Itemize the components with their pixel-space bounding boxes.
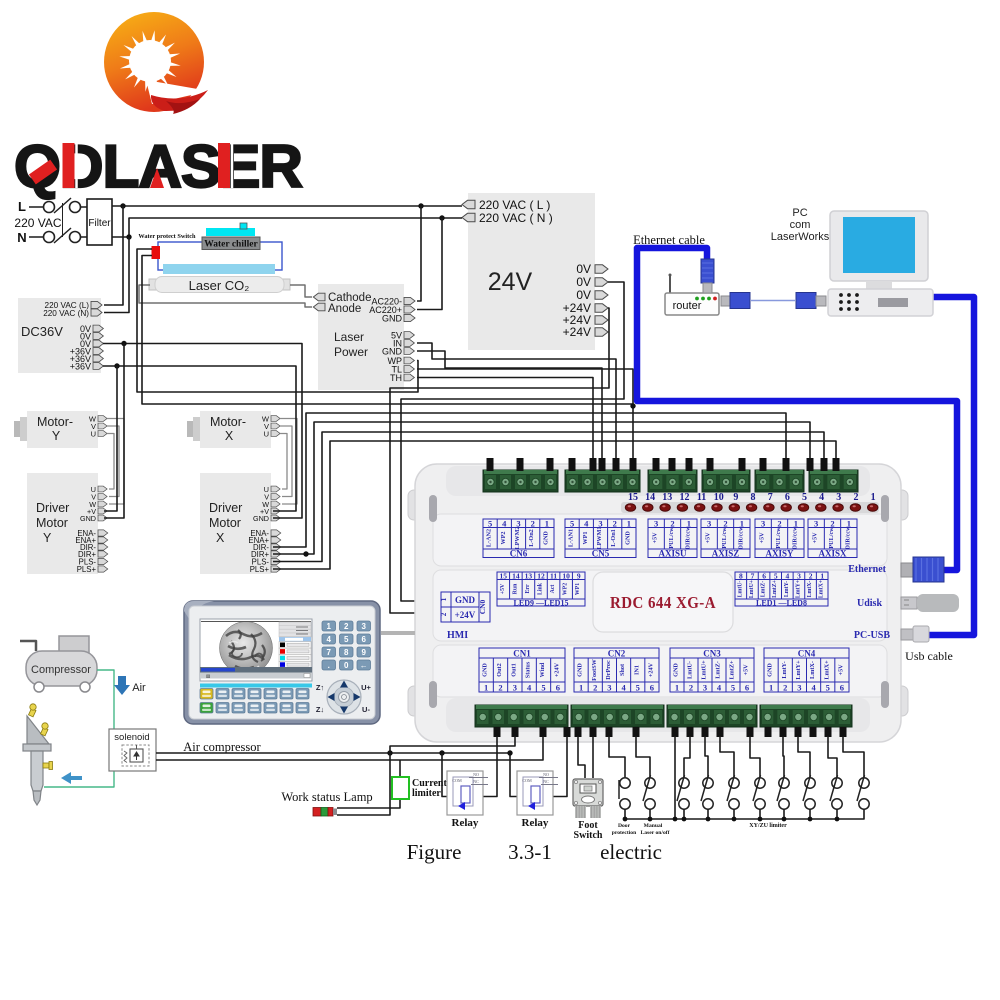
svg-text:L-AN2: L-AN2: [486, 529, 493, 547]
svg-text:GND: GND: [253, 514, 269, 523]
svg-text:5: 5: [826, 683, 830, 693]
svg-text:PUL/cw: PUL/cw: [721, 527, 728, 549]
svg-text:GND: GND: [624, 531, 631, 545]
svg-text:GND: GND: [577, 663, 584, 677]
svg-text:PUL/cw: PUL/cw: [828, 527, 835, 549]
svg-text:5: 5: [541, 683, 545, 693]
svg-text:IN1: IN1: [633, 665, 640, 675]
svg-text:2: 2: [853, 492, 858, 503]
svg-text:CN0: CN0: [478, 599, 487, 614]
svg-text:GND: GND: [382, 314, 403, 324]
svg-text:Laser on/off: Laser on/off: [641, 830, 670, 836]
svg-text:Motor-: Motor-: [37, 415, 73, 429]
svg-text:PLS+: PLS+: [77, 565, 97, 574]
svg-text:limiter: limiter: [412, 788, 441, 799]
svg-text:AXISY: AXISY: [765, 549, 794, 559]
svg-text:Filter: Filter: [88, 218, 111, 229]
svg-text:Motor: Motor: [209, 516, 241, 530]
svg-text:N: N: [17, 230, 26, 245]
svg-text:Power: Power: [334, 345, 368, 359]
svg-text:8: 8: [344, 648, 349, 657]
svg-text:LmtX+: LmtX+: [819, 580, 825, 598]
svg-text:2: 2: [613, 519, 617, 529]
svg-text:AXISU: AXISU: [658, 549, 687, 559]
svg-text:←: ←: [360, 661, 368, 670]
svg-text:2: 2: [809, 572, 813, 581]
svg-text:+24V: +24V: [563, 325, 591, 339]
svg-text:+5V: +5V: [500, 583, 506, 594]
svg-text:Relay: Relay: [452, 817, 479, 829]
svg-text:AXISX: AXISX: [818, 549, 847, 559]
svg-text:9: 9: [361, 648, 366, 657]
svg-text:Link: Link: [538, 582, 544, 595]
svg-text:CN6: CN6: [510, 549, 528, 559]
svg-text:12: 12: [537, 572, 545, 581]
svg-text:GND: GND: [80, 514, 96, 523]
svg-text:3: 3: [761, 519, 765, 529]
svg-text:.: .: [328, 661, 330, 670]
svg-text:3: 3: [607, 683, 611, 693]
svg-text:LPWM1: LPWM1: [596, 526, 603, 549]
svg-text:PUL/cw: PUL/cw: [668, 527, 675, 549]
svg-text:Air compressor: Air compressor: [183, 740, 261, 754]
svg-text:Y: Y: [43, 531, 52, 545]
svg-text:+5V: +5V: [837, 664, 844, 676]
svg-text:13: 13: [662, 492, 672, 503]
svg-text:2: 2: [593, 683, 597, 693]
svg-text:DC36V: DC36V: [21, 324, 63, 339]
svg-text:6: 6: [650, 683, 654, 693]
svg-text:2: 2: [783, 683, 787, 693]
svg-text:1: 1: [769, 683, 773, 693]
svg-text:GND: GND: [382, 347, 403, 357]
svg-text:LED1 —LED8: LED1 —LED8: [756, 599, 807, 608]
svg-text:electric: electric: [600, 840, 662, 864]
svg-text:Z↑: Z↑: [316, 683, 324, 692]
svg-text:DIR/ccw: DIR/ccw: [791, 526, 798, 550]
svg-text:LmtZ-: LmtZ-: [761, 581, 767, 597]
svg-text:5: 5: [488, 519, 492, 529]
svg-text:3: 3: [797, 572, 801, 581]
svg-text:protection: protection: [612, 830, 637, 836]
svg-text:LmtY+: LmtY+: [795, 580, 801, 598]
svg-text:5: 5: [344, 635, 349, 644]
svg-text:8: 8: [739, 572, 743, 581]
svg-text:Switch: Switch: [574, 830, 603, 841]
svg-text:Door: Door: [618, 823, 631, 829]
svg-text:2: 2: [670, 519, 674, 529]
svg-text:1: 1: [440, 597, 448, 601]
svg-text:3: 3: [814, 519, 818, 529]
svg-text:14: 14: [512, 572, 520, 581]
svg-text:TH: TH: [390, 373, 402, 383]
svg-text:0V: 0V: [576, 275, 591, 289]
svg-text:10: 10: [714, 492, 724, 503]
svg-text:1: 1: [675, 683, 679, 693]
svg-text:Motor: Motor: [36, 516, 68, 530]
svg-text:220 VAC ( N ): 220 VAC ( N ): [479, 211, 553, 225]
svg-text:LmtZ+: LmtZ+: [772, 580, 778, 598]
svg-text:Run: Run: [512, 583, 518, 594]
svg-text:4: 4: [785, 572, 789, 581]
svg-text:2: 2: [440, 612, 448, 616]
svg-text:6: 6: [840, 683, 844, 693]
svg-text:2: 2: [723, 519, 727, 529]
svg-text:Status: Status: [525, 661, 532, 678]
svg-text:9: 9: [733, 492, 738, 503]
svg-text:LmtZ-: LmtZ-: [715, 661, 722, 679]
svg-text:4: 4: [811, 683, 816, 693]
svg-text:5: 5: [636, 683, 640, 693]
svg-text:X: X: [216, 531, 225, 545]
svg-text:X: X: [225, 429, 234, 443]
svg-text:24V: 24V: [488, 268, 533, 296]
svg-text:NC: NC: [543, 779, 549, 784]
svg-text:+5V: +5V: [743, 664, 750, 676]
svg-text:3: 3: [707, 519, 711, 529]
svg-text:PC: PC: [792, 207, 807, 219]
svg-text:8: 8: [751, 492, 756, 503]
svg-text:10: 10: [562, 572, 570, 581]
svg-text:5: 5: [774, 572, 778, 581]
svg-text:U-: U-: [362, 705, 370, 714]
svg-text:NO: NO: [543, 772, 549, 777]
svg-text:1: 1: [627, 519, 631, 529]
svg-text:Wind: Wind: [539, 662, 546, 677]
svg-text:1: 1: [326, 622, 331, 631]
svg-text:Shot: Shot: [619, 663, 626, 676]
svg-text:220 VAC: 220 VAC: [14, 216, 61, 230]
svg-text:Water chiller: Water chiller: [204, 240, 258, 250]
svg-text:+5V: +5V: [759, 532, 766, 544]
svg-text:RDC 644 XG-A: RDC 644 XG-A: [610, 593, 716, 612]
svg-text:7: 7: [768, 492, 773, 503]
svg-text:Air: Air: [132, 682, 146, 694]
svg-text:L-On2: L-On2: [528, 529, 535, 547]
svg-text:WP1: WP1: [575, 583, 581, 595]
svg-text:WP2: WP2: [500, 531, 507, 544]
svg-text:+5V: +5V: [652, 532, 659, 544]
svg-text:6: 6: [556, 683, 560, 693]
svg-text:Work status Lamp: Work status Lamp: [281, 790, 372, 804]
svg-text:4: 4: [502, 519, 507, 529]
svg-text:LmtY-: LmtY-: [784, 581, 790, 597]
svg-text:Figure: Figure: [407, 840, 462, 864]
svg-text:1: 1: [484, 683, 488, 693]
svg-text:Act: Act: [550, 585, 556, 594]
svg-text:PC-USB: PC-USB: [854, 630, 890, 641]
svg-text:Compressor: Compressor: [31, 664, 91, 676]
svg-text:2: 2: [777, 519, 781, 529]
svg-text:DIR/ccw: DIR/ccw: [684, 526, 691, 550]
svg-text:4: 4: [621, 683, 626, 693]
svg-text:CN5: CN5: [592, 549, 610, 559]
svg-text:Usb cable: Usb cable: [905, 649, 953, 663]
svg-text:LPWM2: LPWM2: [514, 526, 521, 549]
svg-text:WP1: WP1: [582, 531, 589, 544]
svg-text:CN1: CN1: [513, 649, 531, 659]
svg-text:Anode: Anode: [328, 303, 361, 315]
svg-text:7: 7: [326, 648, 331, 657]
svg-text:11: 11: [697, 492, 706, 503]
svg-text:router: router: [673, 300, 702, 312]
svg-text:Driver: Driver: [209, 501, 242, 515]
svg-text:PUL/cw: PUL/cw: [775, 527, 782, 549]
svg-text:FootSW: FootSW: [591, 658, 598, 680]
svg-text:DIR/ccw: DIR/ccw: [737, 526, 744, 550]
svg-text:PLS+: PLS+: [250, 565, 270, 574]
svg-text:DrProc: DrProc: [605, 660, 612, 680]
svg-text:LmtX-: LmtX-: [807, 581, 813, 598]
svg-text:220 VAC ( L ): 220 VAC ( L ): [479, 198, 550, 212]
svg-text:Y: Y: [52, 429, 61, 443]
svg-text:14: 14: [645, 492, 655, 503]
svg-text:1: 1: [871, 492, 876, 503]
svg-text:1: 1: [545, 519, 549, 529]
svg-text:13: 13: [525, 572, 533, 581]
svg-text:0V: 0V: [576, 288, 591, 302]
svg-text:L-AN1: L-AN1: [568, 529, 575, 547]
svg-text:NO: NO: [473, 772, 479, 777]
svg-text:COM: COM: [522, 778, 532, 783]
svg-text:LmtU-: LmtU-: [737, 581, 743, 598]
svg-text:com: com: [790, 219, 811, 231]
svg-text:0V: 0V: [576, 262, 591, 276]
svg-text:Out2: Out2: [496, 663, 503, 676]
svg-text:220 VAC (N): 220 VAC (N): [43, 309, 89, 318]
svg-text:solenoid: solenoid: [114, 732, 149, 743]
svg-text:9: 9: [577, 572, 581, 581]
svg-text:1: 1: [579, 683, 583, 693]
svg-text:2: 2: [531, 519, 535, 529]
svg-text:+24V: +24V: [553, 662, 560, 677]
svg-text:4: 4: [584, 519, 589, 529]
svg-text:5: 5: [570, 519, 574, 529]
svg-text:LmtU-: LmtU-: [687, 661, 694, 679]
svg-text:LmtZ+: LmtZ+: [729, 660, 736, 679]
svg-text:HMI: HMI: [447, 630, 468, 641]
svg-text:Out1: Out1: [510, 663, 517, 676]
svg-text:3.3-1: 3.3-1: [508, 840, 552, 864]
svg-text:6: 6: [762, 572, 766, 581]
svg-text:6: 6: [785, 492, 790, 503]
svg-text:11: 11: [550, 572, 557, 581]
svg-text:LmtU+: LmtU+: [749, 580, 755, 598]
svg-text:12: 12: [679, 492, 689, 503]
svg-text:5: 5: [802, 492, 807, 503]
svg-text:LmtX+: LmtX+: [823, 660, 830, 680]
svg-text:Z↓: Z↓: [316, 705, 324, 714]
svg-text:3: 3: [797, 683, 801, 693]
svg-text:+24V: +24V: [647, 662, 654, 677]
svg-text:3: 3: [513, 683, 517, 693]
svg-text:+5V: +5V: [705, 532, 712, 544]
svg-text:CN2: CN2: [608, 649, 626, 659]
svg-text:Manual: Manual: [644, 823, 663, 829]
svg-text:0: 0: [344, 661, 349, 670]
svg-text:Motor-: Motor-: [210, 415, 246, 429]
svg-text:4: 4: [819, 492, 824, 503]
svg-text:GND: GND: [455, 595, 476, 605]
svg-text:3: 3: [361, 622, 366, 631]
svg-text:6: 6: [745, 683, 749, 693]
svg-text:LaserWorks: LaserWorks: [771, 231, 830, 243]
svg-text:Laser CO₂: Laser CO₂: [189, 278, 250, 293]
svg-text:Driver: Driver: [36, 501, 69, 515]
svg-text:GND: GND: [542, 531, 549, 545]
svg-text:▤: ▤: [206, 674, 211, 679]
svg-text:4: 4: [527, 683, 532, 693]
svg-text:Water protect Switch: Water protect Switch: [138, 233, 196, 240]
svg-text:U: U: [264, 429, 269, 438]
svg-text:XY/ZU limiter: XY/ZU limiter: [749, 823, 787, 829]
svg-text:AXISZ: AXISZ: [712, 549, 740, 559]
svg-text:2: 2: [344, 622, 349, 631]
svg-text:15: 15: [628, 492, 638, 503]
svg-text:COM: COM: [452, 778, 462, 783]
svg-text:Ethernet: Ethernet: [848, 564, 886, 575]
svg-text:Relay: Relay: [522, 817, 549, 829]
svg-text:15: 15: [500, 572, 508, 581]
svg-text:LmtU+: LmtU+: [701, 660, 708, 680]
svg-text:U+: U+: [361, 683, 371, 692]
svg-text:NC: NC: [473, 779, 479, 784]
svg-text:L: L: [18, 199, 26, 214]
svg-text:2: 2: [830, 519, 834, 529]
svg-text:QDLASER: QDLASER: [14, 133, 303, 200]
svg-text:WP2: WP2: [563, 583, 569, 595]
svg-text:GND: GND: [767, 663, 774, 677]
svg-text:LmtY+: LmtY+: [795, 660, 802, 680]
svg-text:GND: GND: [673, 663, 680, 677]
svg-text:3: 3: [703, 683, 707, 693]
svg-text:Laser: Laser: [334, 330, 364, 344]
svg-text:L-On1: L-On1: [610, 529, 617, 547]
svg-text:LmtY-: LmtY-: [781, 661, 788, 678]
svg-text:+5V: +5V: [812, 532, 819, 544]
svg-text:3: 3: [654, 519, 658, 529]
svg-text:U: U: [91, 429, 96, 438]
svg-text:4: 4: [326, 635, 331, 644]
svg-text:1: 1: [820, 572, 824, 581]
svg-text:7: 7: [751, 572, 755, 581]
svg-text:+36V: +36V: [70, 362, 91, 372]
svg-text:GND: GND: [482, 663, 489, 677]
svg-text:Udisk: Udisk: [857, 598, 882, 609]
svg-text:Err: Err: [525, 584, 531, 593]
svg-text:+24V: +24V: [455, 610, 476, 620]
svg-text:6: 6: [361, 635, 366, 644]
svg-text:DIR/ccw: DIR/ccw: [844, 526, 851, 550]
svg-text:2: 2: [498, 683, 502, 693]
svg-text:3: 3: [836, 492, 841, 503]
svg-text:5: 5: [731, 683, 735, 693]
svg-text:LED9 —LED15: LED9 —LED15: [514, 599, 569, 608]
svg-text:CN3: CN3: [703, 649, 721, 659]
svg-text:CN4: CN4: [798, 649, 816, 659]
svg-text:2: 2: [689, 683, 693, 693]
svg-text:LmtX-: LmtX-: [809, 661, 816, 679]
